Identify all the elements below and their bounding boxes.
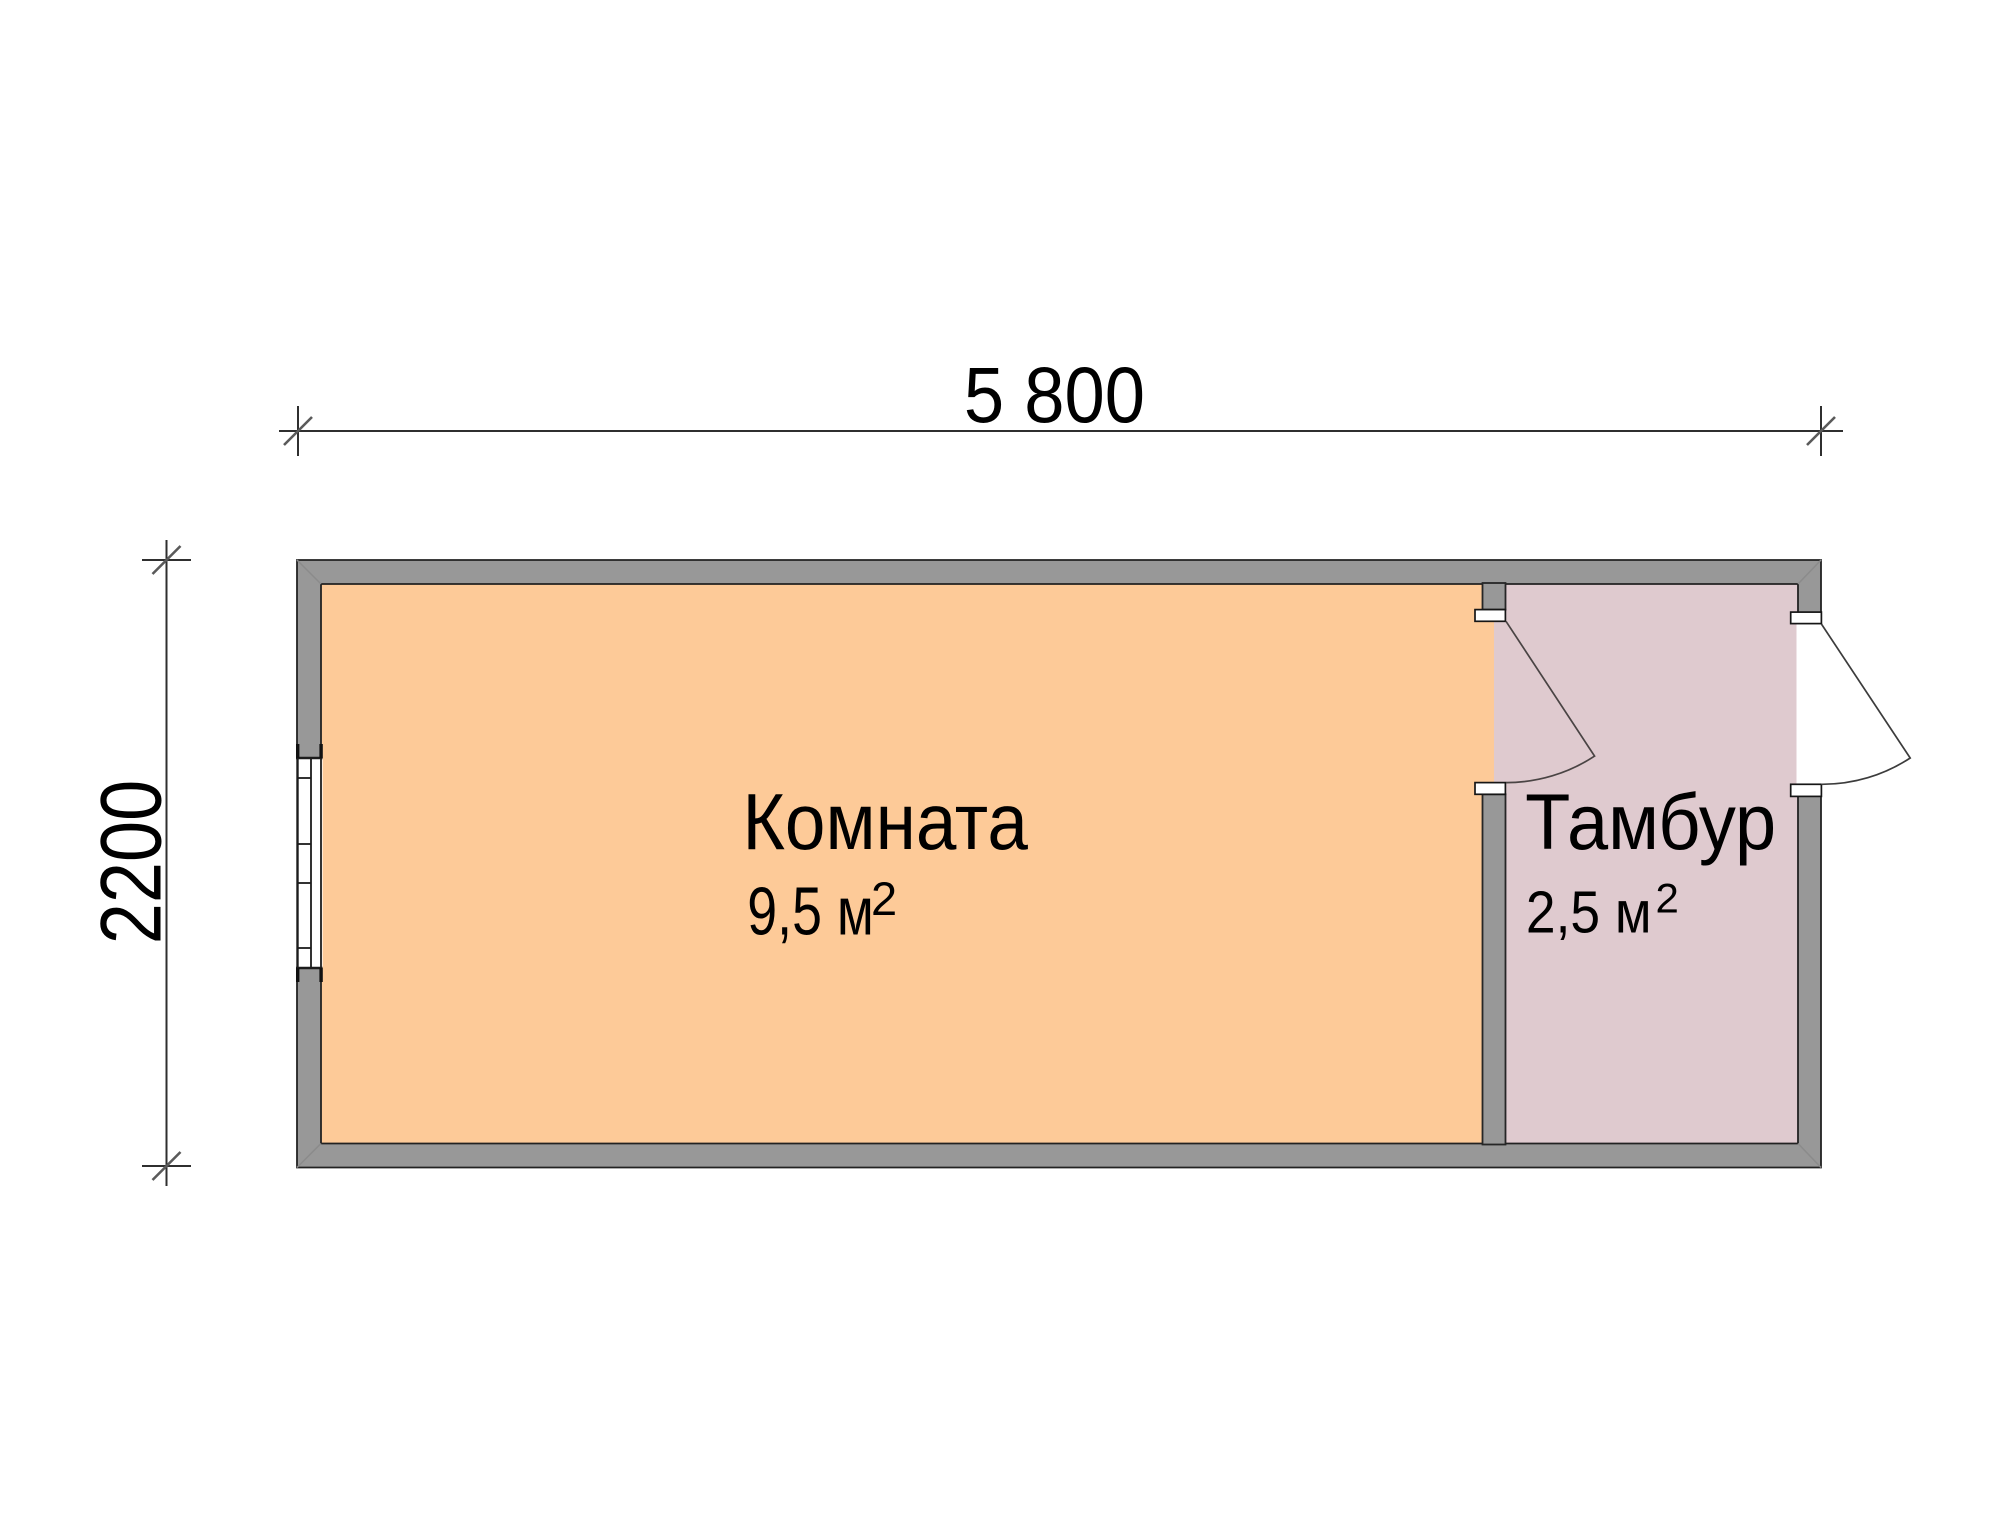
svg-text:2200: 2200 [82, 780, 179, 944]
svg-text:2: 2 [871, 872, 897, 925]
svg-text:5 800: 5 800 [964, 351, 1145, 440]
svg-text:Тамбур: Тамбур [1525, 779, 1776, 867]
svg-text:2,5 м: 2,5 м [1526, 879, 1652, 945]
svg-text:Комната: Комната [742, 778, 1028, 867]
svg-text:9,5 м: 9,5 м [747, 873, 874, 948]
svg-text:2: 2 [1656, 875, 1679, 922]
